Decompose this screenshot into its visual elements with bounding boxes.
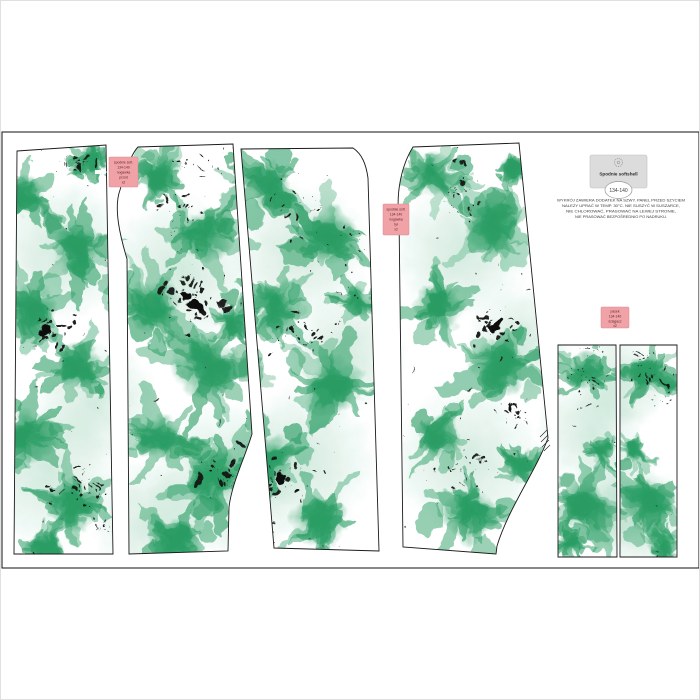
svg-text:WYKRÓJ ZAWIERA DODATEK NA SZWY: WYKRÓJ ZAWIERA DODATEK NA SZWY. PANEL PR… [557, 198, 685, 203]
svg-text:134-140: 134-140 [117, 166, 130, 170]
panel-artwork: spodnie soft. 134-140 nogawka przód x2 s… [1, 1, 700, 700]
product-title: Spodnie softshell [599, 172, 637, 177]
svg-text:przód: przód [119, 176, 128, 180]
svg-text:x2: x2 [122, 181, 126, 185]
svg-text:nogawka: nogawka [117, 171, 131, 175]
svg-text:x2: x2 [613, 324, 617, 328]
size-badge: 134-140 [609, 188, 628, 194]
svg-text:nogawka: nogawka [389, 218, 403, 222]
svg-text:NIE CHLOROWAĆ, PRASOWAĆ NA LEW: NIE CHLOROWAĆ, PRASOWAĆ NA LEWEJ STRONIE… [566, 209, 676, 214]
svg-text:pasek: pasek [610, 310, 619, 314]
svg-text:spodnie soft.: spodnie soft. [386, 208, 405, 212]
svg-text:NIE PRASOWAĆ BEZPOŚREDNIO PO N: NIE PRASOWAĆ BEZPOŚREDNIO PO NADRUKU. [575, 214, 667, 219]
svg-text:tył: tył [394, 223, 398, 227]
svg-text:NALEŻY UPRAĆ W TEMP. 30°C. NIE: NALEŻY UPRAĆ W TEMP. 30°C. NIE SUSZYĆ W … [562, 203, 680, 208]
fabric-panel-mockup: spodnie soft. 134-140 nogawka przód x2 s… [0, 0, 700, 700]
piece-label-back: spodnie soft. 134-140 nogawka tył x2 [383, 204, 409, 235]
svg-text:x2: x2 [394, 228, 398, 232]
svg-text:134-140: 134-140 [609, 315, 622, 319]
piece-label-cuffs: pasek 134-140 ściągacz x2 [601, 307, 629, 328]
svg-text:134-140: 134-140 [390, 213, 403, 217]
svg-text:spodnie soft.: spodnie soft. [114, 161, 133, 165]
piece-label-front: spodnie soft. 134-140 nogawka przód x2 [109, 157, 138, 187]
